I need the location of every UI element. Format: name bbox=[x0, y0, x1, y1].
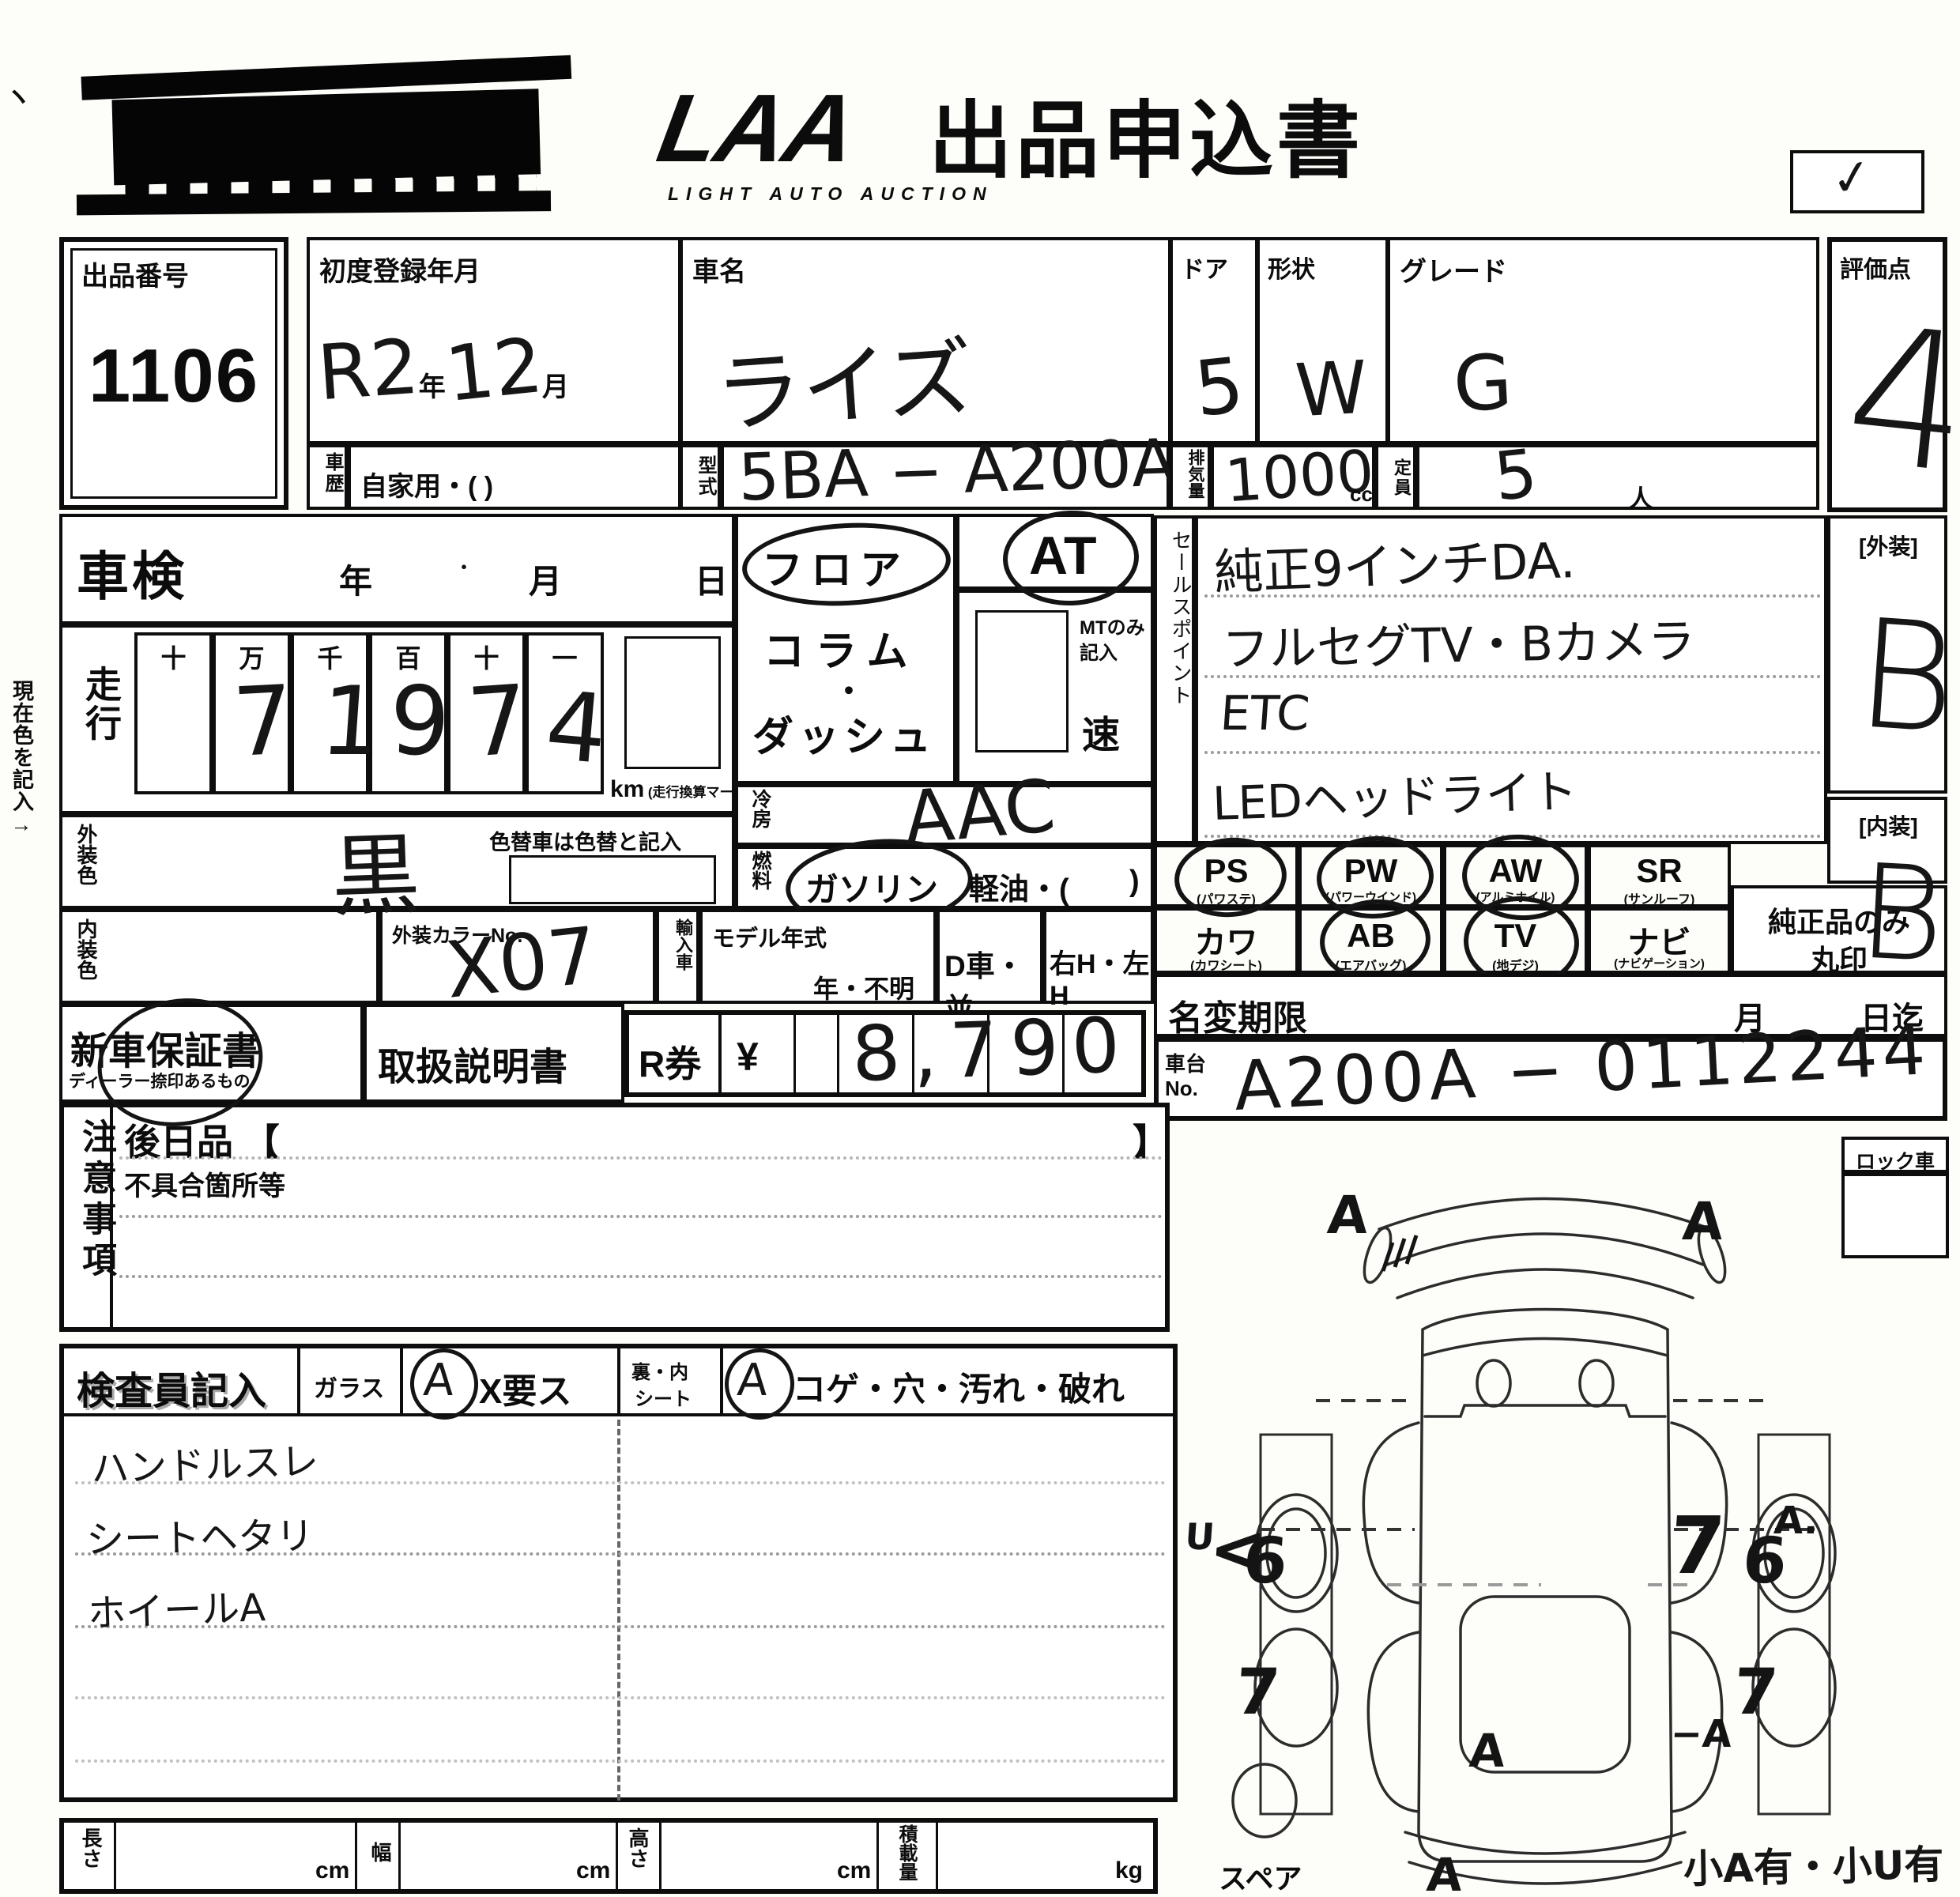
first-reg-cell: 初度登録年月 R2 年 12 月 bbox=[307, 237, 681, 444]
aircon-value: AAC bbox=[901, 764, 1059, 861]
shift-box: フロア コラム ・ ダッシュ bbox=[735, 514, 956, 784]
cap-cell: 5 人 bbox=[1416, 444, 1819, 510]
aircon-row: 冷房 AAC bbox=[735, 784, 1154, 846]
door-value: 5 bbox=[1190, 341, 1247, 434]
grade-value: G bbox=[1451, 338, 1514, 429]
car-name-cell: 車名 ライズ bbox=[680, 237, 1171, 444]
height-label: 高さ bbox=[624, 1827, 653, 1869]
inspector-divider bbox=[617, 1420, 620, 1801]
ext-color-label: 外装色 bbox=[72, 824, 101, 885]
chassis-row: 車台 No. A200A − 0112244 bbox=[1154, 1037, 1947, 1121]
length-unit: cm bbox=[315, 1857, 349, 1884]
yen-sign: ¥ bbox=[737, 1034, 759, 1080]
notes-label: 注意事項 bbox=[70, 1118, 121, 1283]
auction-sheet: ヽ LAA LIGHT AUTO AUCTION 出品申込書 ✓ 出品番号 11… bbox=[0, 0, 1960, 1897]
history-cell: 自家用・( ) bbox=[348, 444, 681, 510]
approval-checkbox: ✓ bbox=[1790, 150, 1924, 213]
shift-dash: ダッシュ bbox=[752, 703, 936, 763]
fuel-diesel: 軽油・( bbox=[969, 865, 1069, 908]
length-label: 長さ bbox=[77, 1827, 106, 1869]
grade-label: グレード bbox=[1400, 250, 1507, 289]
mark-side-right: 7 bbox=[1666, 1499, 1728, 1592]
transfer-label: 名変期限 bbox=[1168, 990, 1307, 1040]
month-suffix: 月 bbox=[542, 365, 569, 404]
exterior-label: [外装] bbox=[1859, 530, 1918, 561]
width-unit: cm bbox=[576, 1857, 610, 1884]
mark-front-wheel-left: 7 bbox=[1233, 1655, 1282, 1729]
inspector-note-3: ホイールA bbox=[87, 1576, 266, 1638]
shaken-row: 車検 年 ・ 月 日 bbox=[59, 514, 735, 624]
mark-front: A bbox=[1425, 1848, 1464, 1897]
mark-rear-right: A bbox=[1681, 1191, 1725, 1252]
recolor-box bbox=[509, 855, 716, 904]
defect-label: 不具合箇所等 bbox=[124, 1164, 285, 1203]
history-value: 自家用・( ) bbox=[360, 465, 493, 503]
mark-windshield: A bbox=[1468, 1724, 1507, 1778]
score-label: 評価点 bbox=[1840, 250, 1911, 285]
disp-label: 排気量 bbox=[1183, 449, 1207, 499]
load-label: 積載量 bbox=[892, 1824, 920, 1881]
odo-h5: 一 bbox=[529, 639, 601, 675]
door-label: ドア bbox=[1181, 250, 1228, 285]
ext-color-value: 黒 bbox=[329, 803, 422, 934]
equip-navi-sub: (ナビゲーション) bbox=[1591, 955, 1728, 971]
mt-box: MTのみ 記入 速 bbox=[956, 590, 1154, 784]
cap-unit: 人 bbox=[1629, 479, 1653, 514]
model-year-value: 年・不明 bbox=[813, 969, 914, 1005]
r-ticket-label: R券 bbox=[639, 1035, 701, 1088]
model-code-label: 型式 bbox=[692, 455, 719, 498]
load-unit: kg bbox=[1115, 1857, 1143, 1884]
model-code-value: 5BA − A200A bbox=[737, 425, 1178, 515]
d-car-cell: D車・並 bbox=[937, 909, 1043, 1004]
glass-note: X要ス bbox=[479, 1363, 571, 1413]
notes-box: 注意事項 後日品 【 】 不具合箇所等 bbox=[59, 1103, 1170, 1332]
disp-label-cell: 排気量 bbox=[1170, 444, 1211, 510]
seat-label-1: 裏・内 bbox=[631, 1356, 688, 1384]
odo-d3: 9 bbox=[388, 666, 452, 779]
aircon-label: 冷房 bbox=[746, 789, 775, 828]
mt-speed: 速 bbox=[1082, 703, 1120, 759]
shape-value: W bbox=[1293, 345, 1369, 434]
odo-d1: 7 bbox=[230, 666, 296, 779]
mark-side-right-a: A. bbox=[1773, 1499, 1820, 1543]
warranty-cell: 新車保証書 ディーラー捺印あるもの bbox=[59, 1004, 364, 1103]
cap-label: 定員 bbox=[1389, 458, 1414, 498]
import-label: 輸入車 bbox=[670, 918, 695, 971]
door-cell: ドア 5 bbox=[1170, 237, 1258, 444]
first-reg-era: R2 bbox=[315, 322, 421, 418]
seat-note: コゲ・穴・汚れ・破れ bbox=[793, 1363, 1125, 1411]
glass-label: ガラス bbox=[314, 1369, 384, 1404]
mt-blank-box bbox=[975, 610, 1069, 752]
sales-line-4: LEDヘッドライト bbox=[1212, 754, 1578, 833]
equip-sr-sub: (サンルーフ) bbox=[1591, 888, 1728, 907]
manual-cell: 取扱説明書 bbox=[364, 1004, 624, 1103]
floor-circle bbox=[740, 518, 952, 611]
at-box: AT bbox=[956, 514, 1154, 590]
int-color-label: 内装色 bbox=[72, 918, 101, 980]
handle-cell: 右H・左H bbox=[1043, 909, 1154, 1004]
model-year-cell: モデル年式 年・不明 bbox=[699, 909, 937, 1004]
model-code-label-cell: 型式 bbox=[680, 444, 721, 510]
score-box: 評価点 4 bbox=[1827, 237, 1947, 512]
lot-number-box: 出品番号 1106 bbox=[59, 237, 288, 510]
odo-d5: 4 bbox=[541, 671, 611, 786]
fuel-label: 燃料 bbox=[746, 850, 775, 890]
exterior-value: B bbox=[1851, 586, 1960, 767]
mark-side-left-arrow: < bbox=[1207, 1510, 1269, 1590]
score-value: 4 bbox=[1837, 284, 1960, 516]
ext-color-row: 外装色 黒 色替車は色替と記入 bbox=[59, 814, 735, 909]
checkmark: ✓ bbox=[1827, 146, 1876, 209]
color-no-value: X07 bbox=[442, 911, 602, 1016]
shaken-year: 年 bbox=[339, 555, 372, 603]
page-title: 出品申込書 bbox=[929, 73, 1363, 194]
history-label-cell: 車歴 bbox=[307, 444, 348, 510]
inspector-label: 検査員記入 bbox=[77, 1360, 266, 1415]
mileage-blank-box bbox=[624, 636, 721, 769]
sales-line-3: ETC bbox=[1219, 686, 1312, 741]
sales-line-2: フルセグTV・Bカメラ bbox=[1221, 603, 1695, 680]
grade-cell: グレード G bbox=[1387, 237, 1819, 444]
equip-sr: SR bbox=[1591, 852, 1728, 890]
mark-front-right: −A bbox=[1669, 1712, 1733, 1756]
lot-number-label: 出品番号 bbox=[81, 255, 189, 293]
inspector-note-2: シートヘタリ bbox=[85, 1504, 314, 1563]
diagram-marks: A A 6 6 AU < 7 A. 7 7 −A A A bbox=[1185, 1185, 1820, 1897]
history-label: 車歴 bbox=[318, 452, 346, 495]
shaken-label: 車検 bbox=[77, 534, 187, 610]
dimensions-row: 長さ cm 幅 cm 高さ cm 積載量 kg bbox=[59, 1818, 1158, 1894]
shape-cell: 形状 W bbox=[1257, 237, 1389, 444]
exterior-box: [外装] B bbox=[1827, 515, 1947, 794]
glass-mark-circle bbox=[407, 1345, 482, 1423]
mark-front-wheel-right: 7 bbox=[1731, 1655, 1780, 1729]
cap-label-cell: 定員 bbox=[1375, 444, 1416, 510]
manual-label: 取扱説明書 bbox=[378, 1035, 567, 1091]
car-name-label: 車名 bbox=[692, 250, 746, 289]
disp-cell: 1000 cc bbox=[1211, 444, 1375, 510]
shaken-day: 日 bbox=[695, 555, 728, 603]
mileage-label: 走行 bbox=[75, 666, 127, 743]
chassis-label-2: No. bbox=[1165, 1077, 1198, 1101]
equip-kawa-sub: (カワシート) bbox=[1157, 955, 1295, 974]
edge-tick: ヽ bbox=[5, 75, 32, 114]
fuel-paren-close: ) bbox=[1129, 865, 1140, 899]
mt-note-1: MTのみ bbox=[1080, 612, 1145, 639]
km-label: km bbox=[610, 776, 644, 802]
width-label: 幅 bbox=[366, 1842, 395, 1865]
cap-value: 5 bbox=[1491, 434, 1540, 515]
mt-note-2: 記入 bbox=[1080, 637, 1118, 665]
interior-value: B bbox=[1855, 835, 1948, 991]
current-color-note: 現在色を記入→ bbox=[6, 680, 37, 1012]
int-color-cell: 内装色 bbox=[59, 909, 379, 1004]
diagram-dashed-lines bbox=[1261, 1401, 1818, 1585]
model-code-cell: 5BA − A200A bbox=[721, 444, 1170, 510]
seat-mark-circle bbox=[722, 1345, 797, 1422]
laa-logo: LAA bbox=[650, 73, 863, 183]
odo-h0: 十 bbox=[138, 639, 209, 675]
import-label-cell: 輸入車 bbox=[656, 909, 699, 1004]
car-name-value: ライズ bbox=[710, 307, 977, 451]
sales-area: 純正9インチDA. フルセグTV・Bカメラ ETC LEDヘッドライト bbox=[1195, 515, 1827, 844]
lot-number-value: 1106 bbox=[64, 333, 284, 420]
seat-label-2: シート bbox=[635, 1383, 692, 1411]
year-suffix: 年 bbox=[419, 365, 446, 404]
model-year-label: モデル年式 bbox=[712, 920, 827, 953]
shape-label: 形状 bbox=[1268, 250, 1315, 285]
car-diagram: A A 6 6 AU < 7 A. 7 7 −A A A bbox=[1185, 1122, 1952, 1897]
odo-d4: 7 bbox=[464, 666, 532, 779]
inspector-box: 検査員記入 ガラス A X要ス 裏・内 シート A コゲ・穴・汚れ・破れ ハンド… bbox=[59, 1344, 1178, 1802]
sales-label-box: セールスポイント bbox=[1154, 515, 1195, 844]
chassis-label-1: 車台 bbox=[1165, 1048, 1206, 1077]
recolor-note: 色替車は色替と記入 bbox=[489, 825, 681, 856]
mark-rear-left: A bbox=[1325, 1185, 1370, 1246]
sales-line-1: 純正9インチDA. bbox=[1213, 520, 1577, 604]
r-ticket-box: R券 ¥ 8,790 bbox=[624, 1010, 1146, 1097]
disp-unit: cc bbox=[1350, 482, 1373, 507]
height-unit: cm bbox=[837, 1857, 871, 1884]
shaken-month: 月 bbox=[529, 555, 562, 603]
inspector-note-1: ハンドルスレ bbox=[90, 1430, 319, 1493]
sales-label: セールスポイント bbox=[1167, 530, 1196, 707]
redacted-stamp bbox=[73, 52, 598, 232]
r-ticket-amount: 8,790 bbox=[850, 1001, 1134, 1099]
first-reg-month: 12 bbox=[441, 321, 546, 419]
first-reg-label: 初度登録年月 bbox=[319, 250, 481, 289]
interior-box: [内装] B bbox=[1827, 797, 1947, 884]
